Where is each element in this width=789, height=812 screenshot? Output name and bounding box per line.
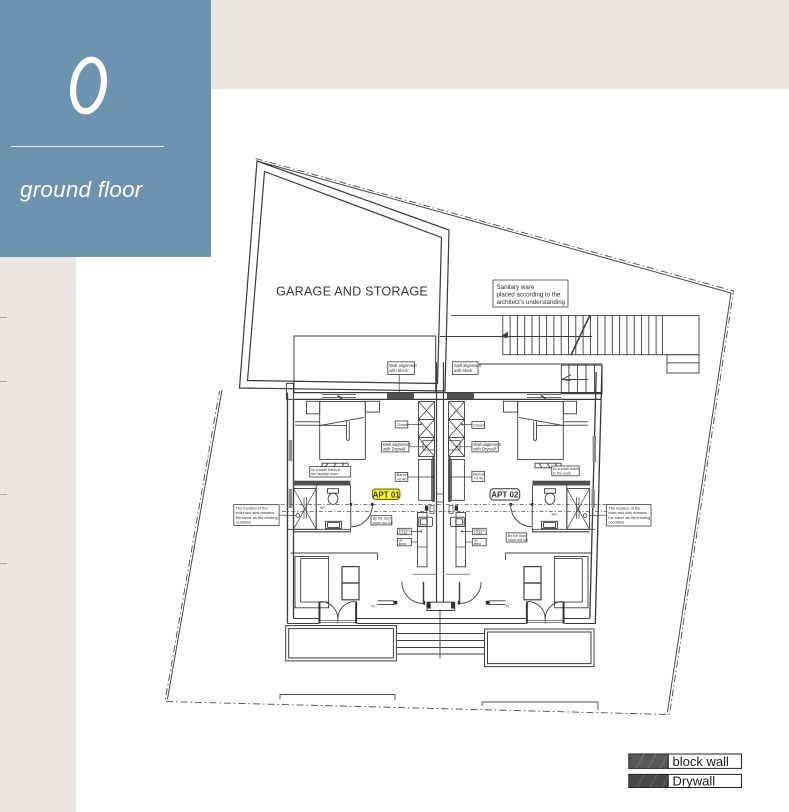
svg-text:APT 01: APT 01 (373, 490, 401, 499)
svg-text:fix a wash basin in: fix a wash basin in (311, 468, 340, 472)
svg-text:+0.40: +0.40 (397, 476, 408, 481)
svg-text:room not cut: room not cut (373, 521, 393, 525)
svg-text:TV: TV (371, 605, 376, 609)
svg-text:+0.40: +0.40 (474, 532, 483, 536)
svg-text:Closet: Closet (473, 422, 485, 427)
svg-text:architect's understanding: architect's understanding (497, 299, 566, 306)
svg-text:Closet: Closet (397, 422, 409, 427)
svg-text:block wall: block wall (673, 754, 729, 769)
svg-text:Sanitary ware: Sanitary ware (497, 284, 535, 291)
svg-text:lined: lined (399, 542, 406, 546)
svg-text:lined: lined (474, 542, 481, 546)
svg-text:with Drywall: with Drywall (383, 447, 405, 452)
svg-text:TV: TV (506, 605, 511, 609)
svg-text:+0.40: +0.40 (473, 476, 484, 481)
svg-text:with block: with block (389, 368, 408, 373)
svg-text:+0.40: +0.40 (399, 532, 408, 536)
svg-text:APT 02: APT 02 (491, 491, 519, 500)
svg-text:Drywall: Drywall (673, 774, 716, 789)
svg-text:WC: WC (552, 512, 558, 516)
svg-text:with Drywall: with Drywall (473, 447, 495, 452)
svg-text:placed according to the: placed according to the (497, 292, 562, 299)
svg-text:GARAGE AND STORAGE: GARAGE AND STORAGE (276, 284, 428, 299)
svg-text:condition: condition (608, 519, 624, 524)
svg-text:with block: with block (454, 368, 473, 373)
svg-text:room not cut: room not cut (508, 538, 528, 542)
svg-text:WC: WC (320, 506, 326, 510)
svg-text:in the room: in the room (553, 471, 571, 475)
svg-text:condition: condition (236, 519, 252, 524)
svg-text:the laundry room: the laundry room (311, 472, 338, 476)
